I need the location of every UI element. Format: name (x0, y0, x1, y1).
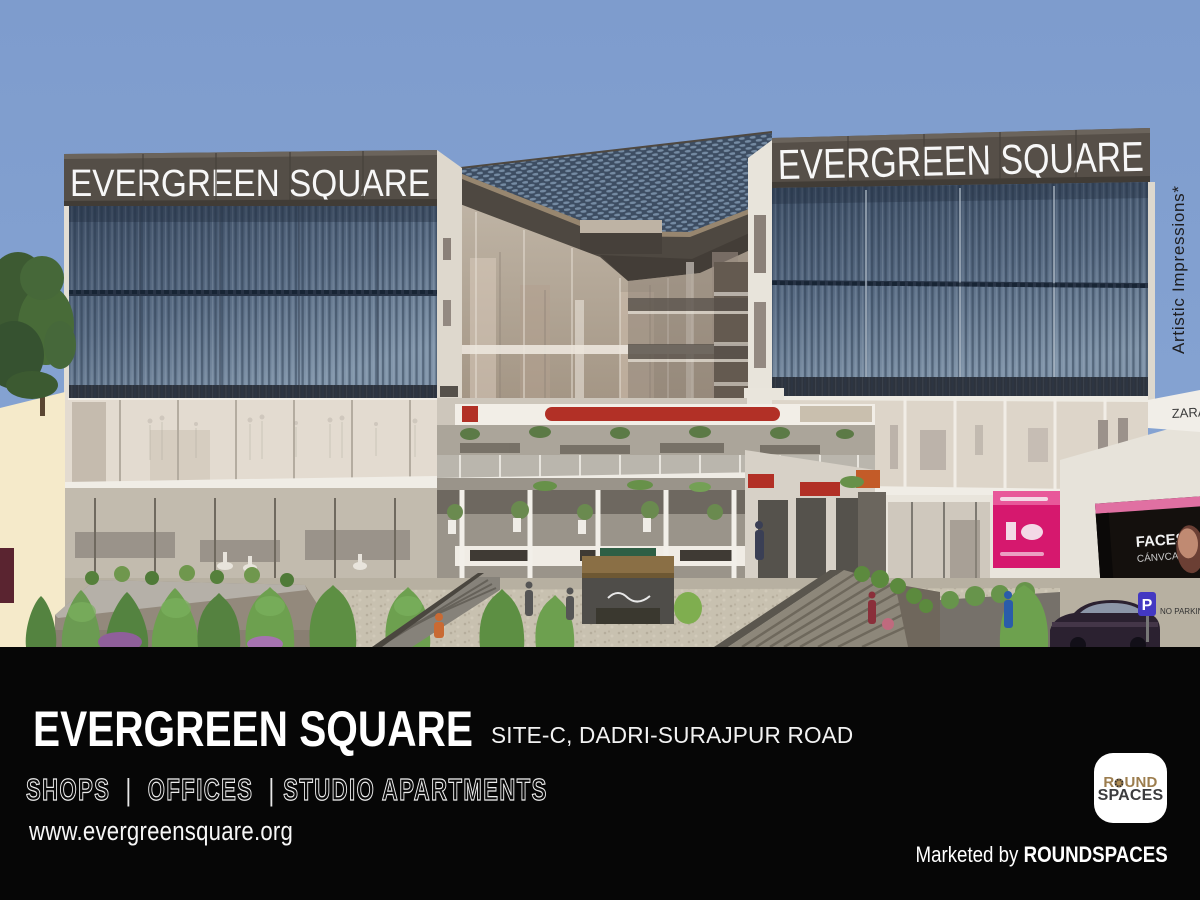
svg-text:NO PARKING: NO PARKING (1160, 607, 1200, 616)
svg-text:ZARA: ZARA (1171, 404, 1200, 421)
svg-text:P: P (1142, 597, 1153, 614)
svg-text:EVERGREEN SQUARE: EVERGREEN SQUARE (70, 163, 430, 205)
svg-text:Artistic Impressions*: Artistic Impressions* (1169, 186, 1188, 354)
